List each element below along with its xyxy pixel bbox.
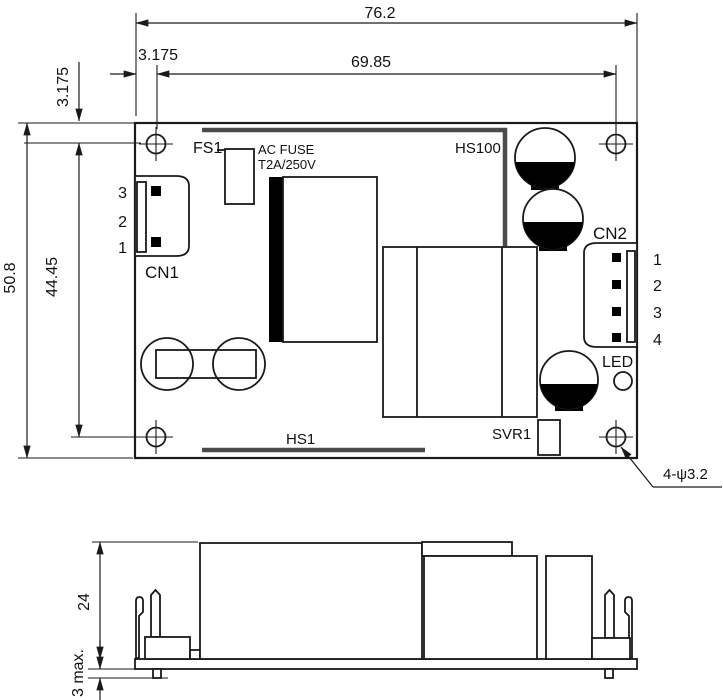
capacitor-pair-component <box>141 338 265 390</box>
dim-hole-offset-x: 3.175 <box>138 47 178 64</box>
side-cn1-lead <box>153 669 161 678</box>
cn1-pin1-pad <box>151 237 161 247</box>
cn2-pin4-pad <box>612 333 621 342</box>
hs100-label: HS100 <box>455 140 501 157</box>
connector-cn2 <box>584 243 637 347</box>
cn2-pin3-pad <box>612 307 621 316</box>
dim-total-height: 50.8 <box>2 262 19 293</box>
side-component-large-box <box>200 543 422 659</box>
dim-total-width: 76.2 <box>364 5 395 22</box>
transformer2-body <box>383 247 537 417</box>
capacitor-bottom <box>538 351 600 411</box>
side-component-cap-strip <box>422 542 512 556</box>
dim-lead-protrusion: 3 max. <box>70 649 87 697</box>
cn1-pin3-number: 3 <box>118 185 127 202</box>
side-component-small-box <box>546 556 592 659</box>
mounting-hole-bottom-left <box>139 420 173 454</box>
pcb-mechanical-drawing: FS1 AC FUSE T2A/250V HS100 CN1 CN2 LED S… <box>0 0 723 700</box>
fuse-type-label: AC FUSE <box>258 142 315 157</box>
cn2-pin3-number: 3 <box>653 305 662 322</box>
cn1-pin2-number: 2 <box>118 214 127 231</box>
hs1-label: HS1 <box>286 431 315 448</box>
side-component-mid-box <box>424 556 537 659</box>
dim-hole-span-x: 69.85 <box>351 54 391 71</box>
capacitor-top-1 <box>513 128 577 190</box>
mounting-hole-top-right <box>599 127 633 161</box>
cn2-pin1-number: 1 <box>653 252 662 269</box>
capacitor-top-2 <box>521 189 585 251</box>
svr1-body <box>538 420 560 455</box>
transformer1-black-bar <box>269 177 283 342</box>
dim-hole-offset-y: 3.175 <box>55 67 72 107</box>
cn2-pin2-pad <box>612 280 621 289</box>
mechanical-drawing-page: FS1 AC FUSE T2A/250V HS100 CN1 CN2 LED S… <box>0 0 723 700</box>
top-view: FS1 AC FUSE T2A/250V HS100 CN1 CN2 LED S… <box>2 5 722 487</box>
cn2-pin4-number: 4 <box>653 332 662 349</box>
dim-component-height: 24 <box>76 593 93 611</box>
cn2-label: CN2 <box>593 224 627 243</box>
cn1-label: CN1 <box>145 263 179 282</box>
transformer1-body <box>283 177 377 342</box>
side-cn2-lead <box>605 669 613 678</box>
connector-cn1 <box>135 176 189 256</box>
side-dimension-lines <box>88 542 198 700</box>
fuse-fs1-body <box>225 149 254 204</box>
fuse-rating-label: T2A/250V <box>258 157 316 172</box>
mounting-hole-bottom-right <box>599 420 633 454</box>
side-view: 24 3 max. <box>70 542 637 700</box>
fs1-label: FS1 <box>193 140 222 157</box>
led-indicator <box>614 372 632 390</box>
led-label: LED <box>602 354 633 371</box>
dim-hole-span-y: 44.45 <box>44 257 61 297</box>
cn2-pin2-number: 2 <box>653 278 662 295</box>
cn2-pin1-pad <box>612 253 621 262</box>
cn1-pin1-number: 1 <box>118 240 127 257</box>
cn1-pin3-pad <box>151 186 161 196</box>
mounting-hole-top-left <box>139 127 173 161</box>
hole-diameter-note: 4-ψ3.2 <box>663 466 708 483</box>
side-pcb-slab <box>135 659 637 669</box>
svr1-label: SVR1 <box>492 426 531 443</box>
